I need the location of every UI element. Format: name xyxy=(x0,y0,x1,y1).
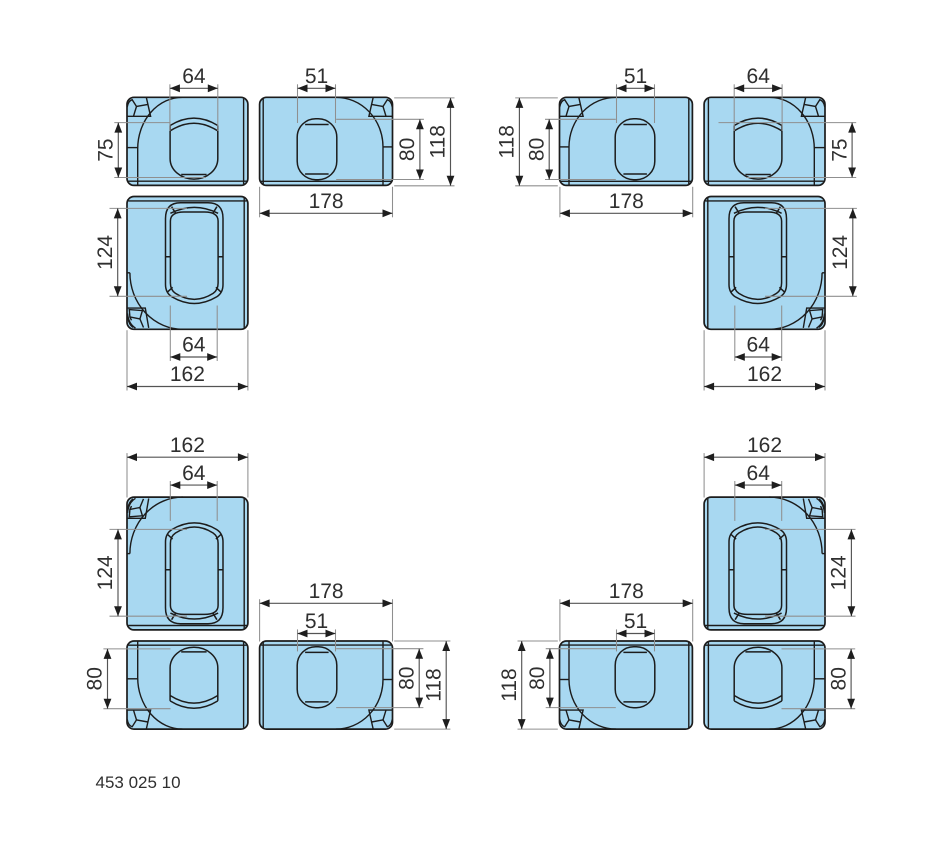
svg-text:178: 178 xyxy=(609,580,644,603)
svg-text:124: 124 xyxy=(94,555,117,590)
svg-text:118: 118 xyxy=(422,668,445,701)
svg-text:118: 118 xyxy=(496,125,519,158)
svg-text:453 025 10: 453 025 10 xyxy=(96,773,181,792)
svg-text:51: 51 xyxy=(624,65,647,88)
svg-text:51: 51 xyxy=(305,610,328,633)
svg-text:75: 75 xyxy=(828,138,851,161)
svg-text:124: 124 xyxy=(828,555,851,590)
svg-text:80: 80 xyxy=(84,667,107,690)
svg-text:64: 64 xyxy=(747,334,771,357)
svg-text:80: 80 xyxy=(396,138,419,161)
svg-text:64: 64 xyxy=(747,65,771,88)
svg-text:118: 118 xyxy=(498,668,521,701)
svg-text:64: 64 xyxy=(182,334,206,357)
svg-text:118: 118 xyxy=(427,125,450,158)
svg-text:64: 64 xyxy=(747,462,771,485)
svg-text:178: 178 xyxy=(309,190,344,213)
svg-text:178: 178 xyxy=(309,580,344,603)
svg-text:51: 51 xyxy=(305,65,328,88)
svg-text:162: 162 xyxy=(170,434,205,457)
svg-text:162: 162 xyxy=(747,363,782,386)
svg-text:75: 75 xyxy=(95,138,118,161)
svg-text:80: 80 xyxy=(526,667,549,690)
svg-text:80: 80 xyxy=(827,667,850,690)
svg-text:80: 80 xyxy=(525,138,548,161)
svg-text:162: 162 xyxy=(747,434,782,457)
svg-text:80: 80 xyxy=(395,667,418,690)
svg-text:64: 64 xyxy=(182,462,206,485)
svg-text:124: 124 xyxy=(94,235,117,270)
svg-text:162: 162 xyxy=(170,363,205,386)
svg-text:178: 178 xyxy=(609,190,644,213)
svg-text:64: 64 xyxy=(182,65,206,88)
svg-text:51: 51 xyxy=(624,610,647,633)
svg-text:124: 124 xyxy=(829,235,852,270)
